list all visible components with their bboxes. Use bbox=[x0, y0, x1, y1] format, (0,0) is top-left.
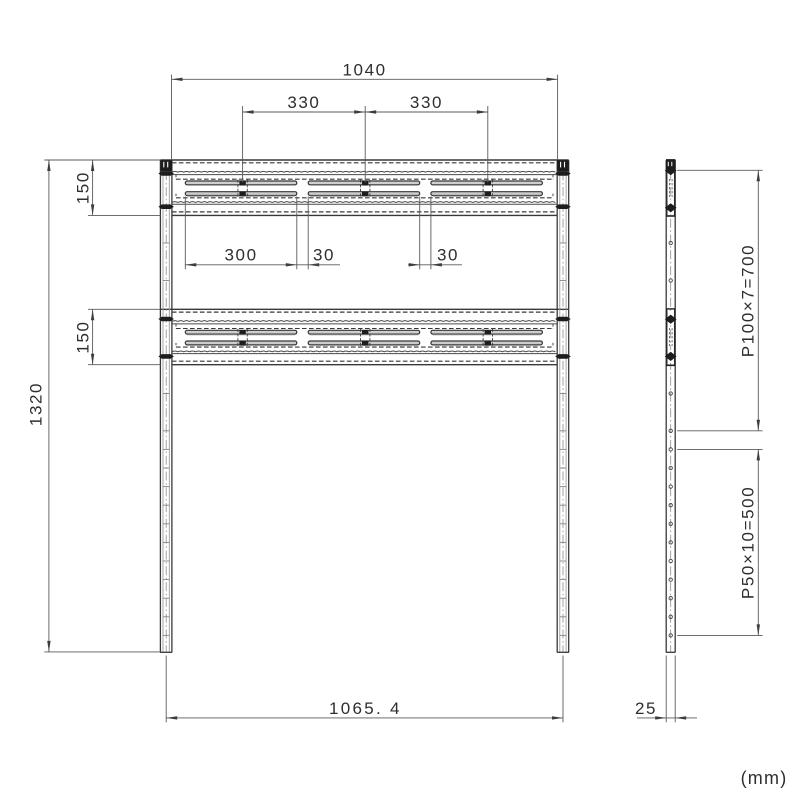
svg-text:1065. 4: 1065. 4 bbox=[329, 699, 402, 718]
svg-text:150: 150 bbox=[74, 171, 93, 204]
svg-text:(mm): (mm) bbox=[741, 768, 788, 788]
svg-text:P50×10=500: P50×10=500 bbox=[738, 486, 757, 599]
svg-text:1320: 1320 bbox=[27, 382, 46, 426]
svg-text:150: 150 bbox=[74, 320, 93, 353]
svg-text:330: 330 bbox=[287, 93, 320, 112]
svg-text:P100×7=700: P100×7=700 bbox=[738, 244, 757, 357]
svg-text:300: 300 bbox=[225, 246, 258, 265]
svg-text:25: 25 bbox=[635, 699, 657, 718]
svg-text:1040: 1040 bbox=[342, 61, 386, 80]
svg-text:30: 30 bbox=[313, 246, 335, 265]
svg-text:330: 330 bbox=[410, 93, 443, 112]
svg-text:30: 30 bbox=[437, 246, 459, 265]
